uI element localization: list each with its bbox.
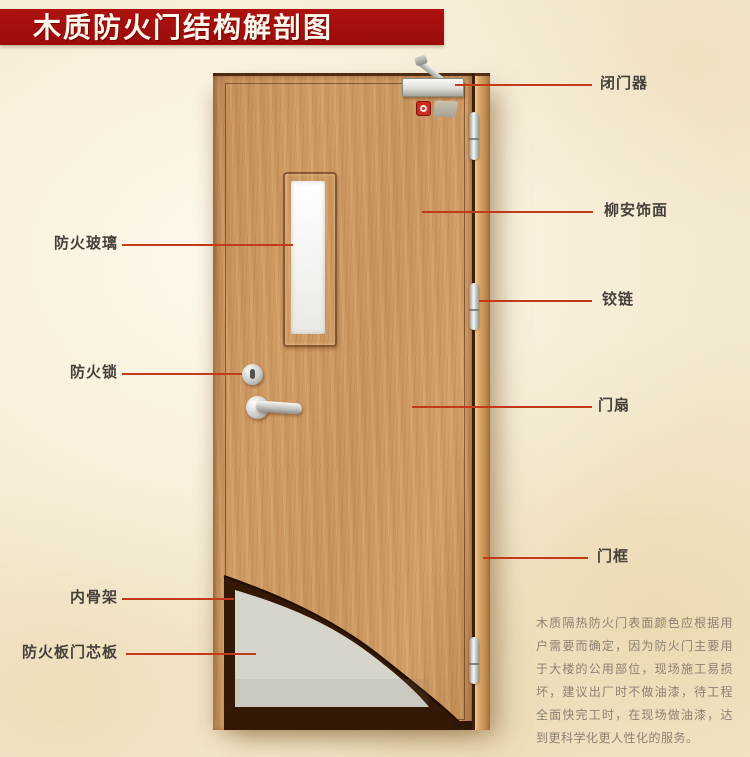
page-title: 木质防火门结构解剖图 (0, 9, 444, 46)
glass-pane (291, 181, 325, 334)
label-inner-skeleton: 内骨架 (18, 588, 118, 608)
label-hinge: 铰链 (602, 290, 634, 310)
label-door-closer: 闭门器 (600, 74, 648, 94)
fire-lock-cylinder (242, 364, 263, 385)
callout-line-fire-glass (122, 244, 293, 246)
callout-line-core-board (126, 653, 256, 655)
callout-line-door-leaf (412, 406, 592, 408)
label-fire-lock: 防火锁 (18, 363, 118, 383)
callout-line-inner-skeleton (122, 598, 234, 600)
alarm-indicator (416, 101, 431, 116)
description-note: 木质隔热防火门表面颜色应根据用户需要而确定，因为防火门主要用于大楼的公用部位，现… (536, 612, 733, 750)
title-banner: 木质防火门结构解剖图 (0, 9, 444, 45)
label-fire-glass: 防火玻璃 (18, 234, 118, 254)
fire-glass-window (283, 172, 337, 347)
callout-line-hinge (479, 300, 592, 302)
alarm-ring (420, 105, 427, 112)
core-board-shade (235, 679, 429, 707)
label-door-frame: 门框 (597, 547, 629, 567)
callout-line-fire-lock (122, 373, 242, 375)
callout-line-veneer (422, 211, 593, 213)
callout-line-door-frame (483, 557, 588, 559)
hinge-middle (469, 283, 479, 330)
label-door-leaf: 门扇 (598, 396, 630, 416)
door-bottom-edge (451, 721, 472, 730)
info-sticker (433, 100, 458, 117)
keyhole (250, 369, 255, 379)
label-veneer: 柳安饰面 (604, 201, 668, 221)
door-illustration (213, 73, 490, 730)
label-core-board: 防火板门芯板 (18, 643, 118, 663)
hinge-bottom (469, 637, 479, 684)
door-closer (402, 78, 464, 97)
callout-line-door-closer (455, 84, 592, 86)
hinge-top (469, 112, 479, 160)
